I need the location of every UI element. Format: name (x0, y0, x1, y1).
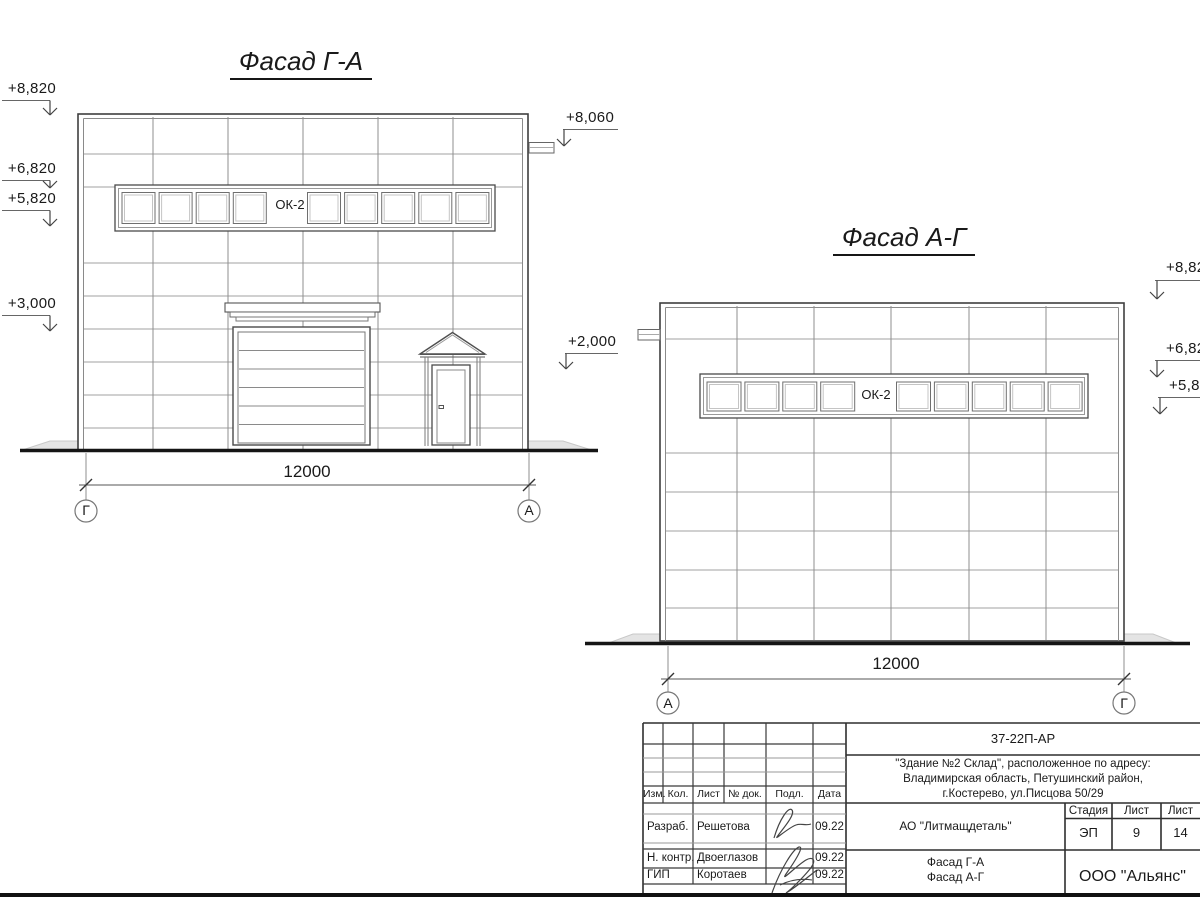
stamp-date-1: 09.22 (814, 821, 845, 834)
stamp-drawing-title-1: Фасад Г-А (846, 856, 1065, 869)
facade-ag-drawing (585, 281, 1200, 715)
dimension-text-ag: 12000 (864, 654, 928, 673)
stamp-col-dok: № док. (724, 789, 766, 801)
stamp-object-line-3: г.Костерево, ул.Писцова 50/29 (846, 788, 1200, 801)
blind-area (24, 441, 590, 450)
panel-grid (84, 117, 522, 449)
elevation-label-2000: +2,000 (568, 334, 628, 351)
entry-door (432, 365, 470, 445)
gutter-outlet-left (638, 330, 660, 341)
panel-grid (666, 306, 1118, 640)
stamp-role-razrab: Разраб. (647, 821, 688, 834)
axis-bubble-a: А (517, 503, 541, 519)
stamp-object-line-1: "Здание №2 Склад", расположенное по адре… (846, 758, 1200, 771)
elevation-label-8820: +8,820 (0, 81, 56, 98)
elevation-label-582: +5,82 (1169, 378, 1200, 395)
sectional-gate (233, 327, 370, 445)
axis-bubble-g: Г (74, 503, 98, 519)
stamp-col-kol: Кол. (663, 789, 693, 801)
stamp-col-data: Дата (813, 789, 846, 801)
stamp-object-line-2: Владимирская область, Петушинский район, (846, 773, 1200, 786)
stamp-sheet-value: 9 (1112, 826, 1161, 841)
stamp-name-reshetova: Решетова (697, 821, 750, 834)
axis-bubbles (657, 692, 1135, 714)
wall-outline (78, 114, 528, 450)
stamp-stage-value: ЭП (1065, 826, 1112, 841)
axis-bubble-g2: Г (1112, 696, 1136, 712)
stamp-name-dvoeglazov: Двоеглазов (697, 852, 758, 865)
stamp-stage-label: Стадия (1065, 805, 1112, 818)
sheet-bottom-border (0, 893, 1200, 897)
stamp-col-list: Лист (693, 789, 724, 801)
stamp-date-3: 09.22 (814, 869, 845, 882)
stamp-organization: ООО "Альянс" (1065, 868, 1200, 886)
facade-ga-drawing (2, 101, 618, 523)
wall-outline (660, 303, 1124, 641)
stamp-col-izm: Изм. (643, 789, 663, 801)
stamp-date-2: 09.22 (814, 852, 845, 865)
gate-canopy (225, 303, 380, 321)
stamp-sheet-label: Лист (1112, 805, 1161, 818)
stamp-role-gip: ГИП (647, 869, 670, 882)
door-handle (439, 406, 444, 409)
elevation-label-3000: +3,000 (0, 296, 56, 313)
facade-ga-title: Фасад Г-А (230, 47, 372, 80)
stamp-col-podl: Подл. (766, 789, 813, 801)
blind-area (610, 634, 1175, 643)
axis-bubbles (75, 500, 540, 522)
elevation-label-6820: +6,820 (0, 161, 56, 178)
facade-ag-title: Фасад А-Г (833, 223, 975, 256)
entry-porch (420, 333, 485, 447)
dimension-text-ga: 12000 (275, 462, 339, 481)
elevation-label-682: +6,82 (1166, 341, 1200, 358)
window-tag-ga: ОК-2 (265, 198, 315, 213)
drawing-sheet: Фасад Г-А +8,820 +6,820 +5,820 +3,000 +8… (0, 0, 1200, 900)
stamp-name-korotaev: Коротаев (697, 869, 747, 882)
axis-bubble-a2: А (656, 696, 680, 712)
signature-reshetova (774, 809, 811, 838)
elevation-mark-arrows (2, 101, 618, 370)
elevation-label-5820: +5,820 (0, 191, 56, 208)
elevation-label-8060: +8,060 (566, 110, 626, 127)
stamp-sheets-value: 14 (1161, 826, 1200, 841)
gutter-outlet-right (529, 143, 554, 154)
signature-approvers (772, 847, 817, 893)
window-tag-ag: ОК-2 (851, 388, 901, 403)
stamp-doc-code: 37-22П-АР (846, 732, 1200, 747)
stamp-customer: АО "Литмащдеталь" (846, 820, 1065, 833)
elevation-label-882: +8,82 (1166, 260, 1200, 277)
stamp-role-nkontr: Н. контр. (647, 852, 694, 865)
stamp-sheets-label: Лист (1161, 805, 1200, 818)
stamp-drawing-title-2: Фасад А-Г (846, 871, 1065, 884)
